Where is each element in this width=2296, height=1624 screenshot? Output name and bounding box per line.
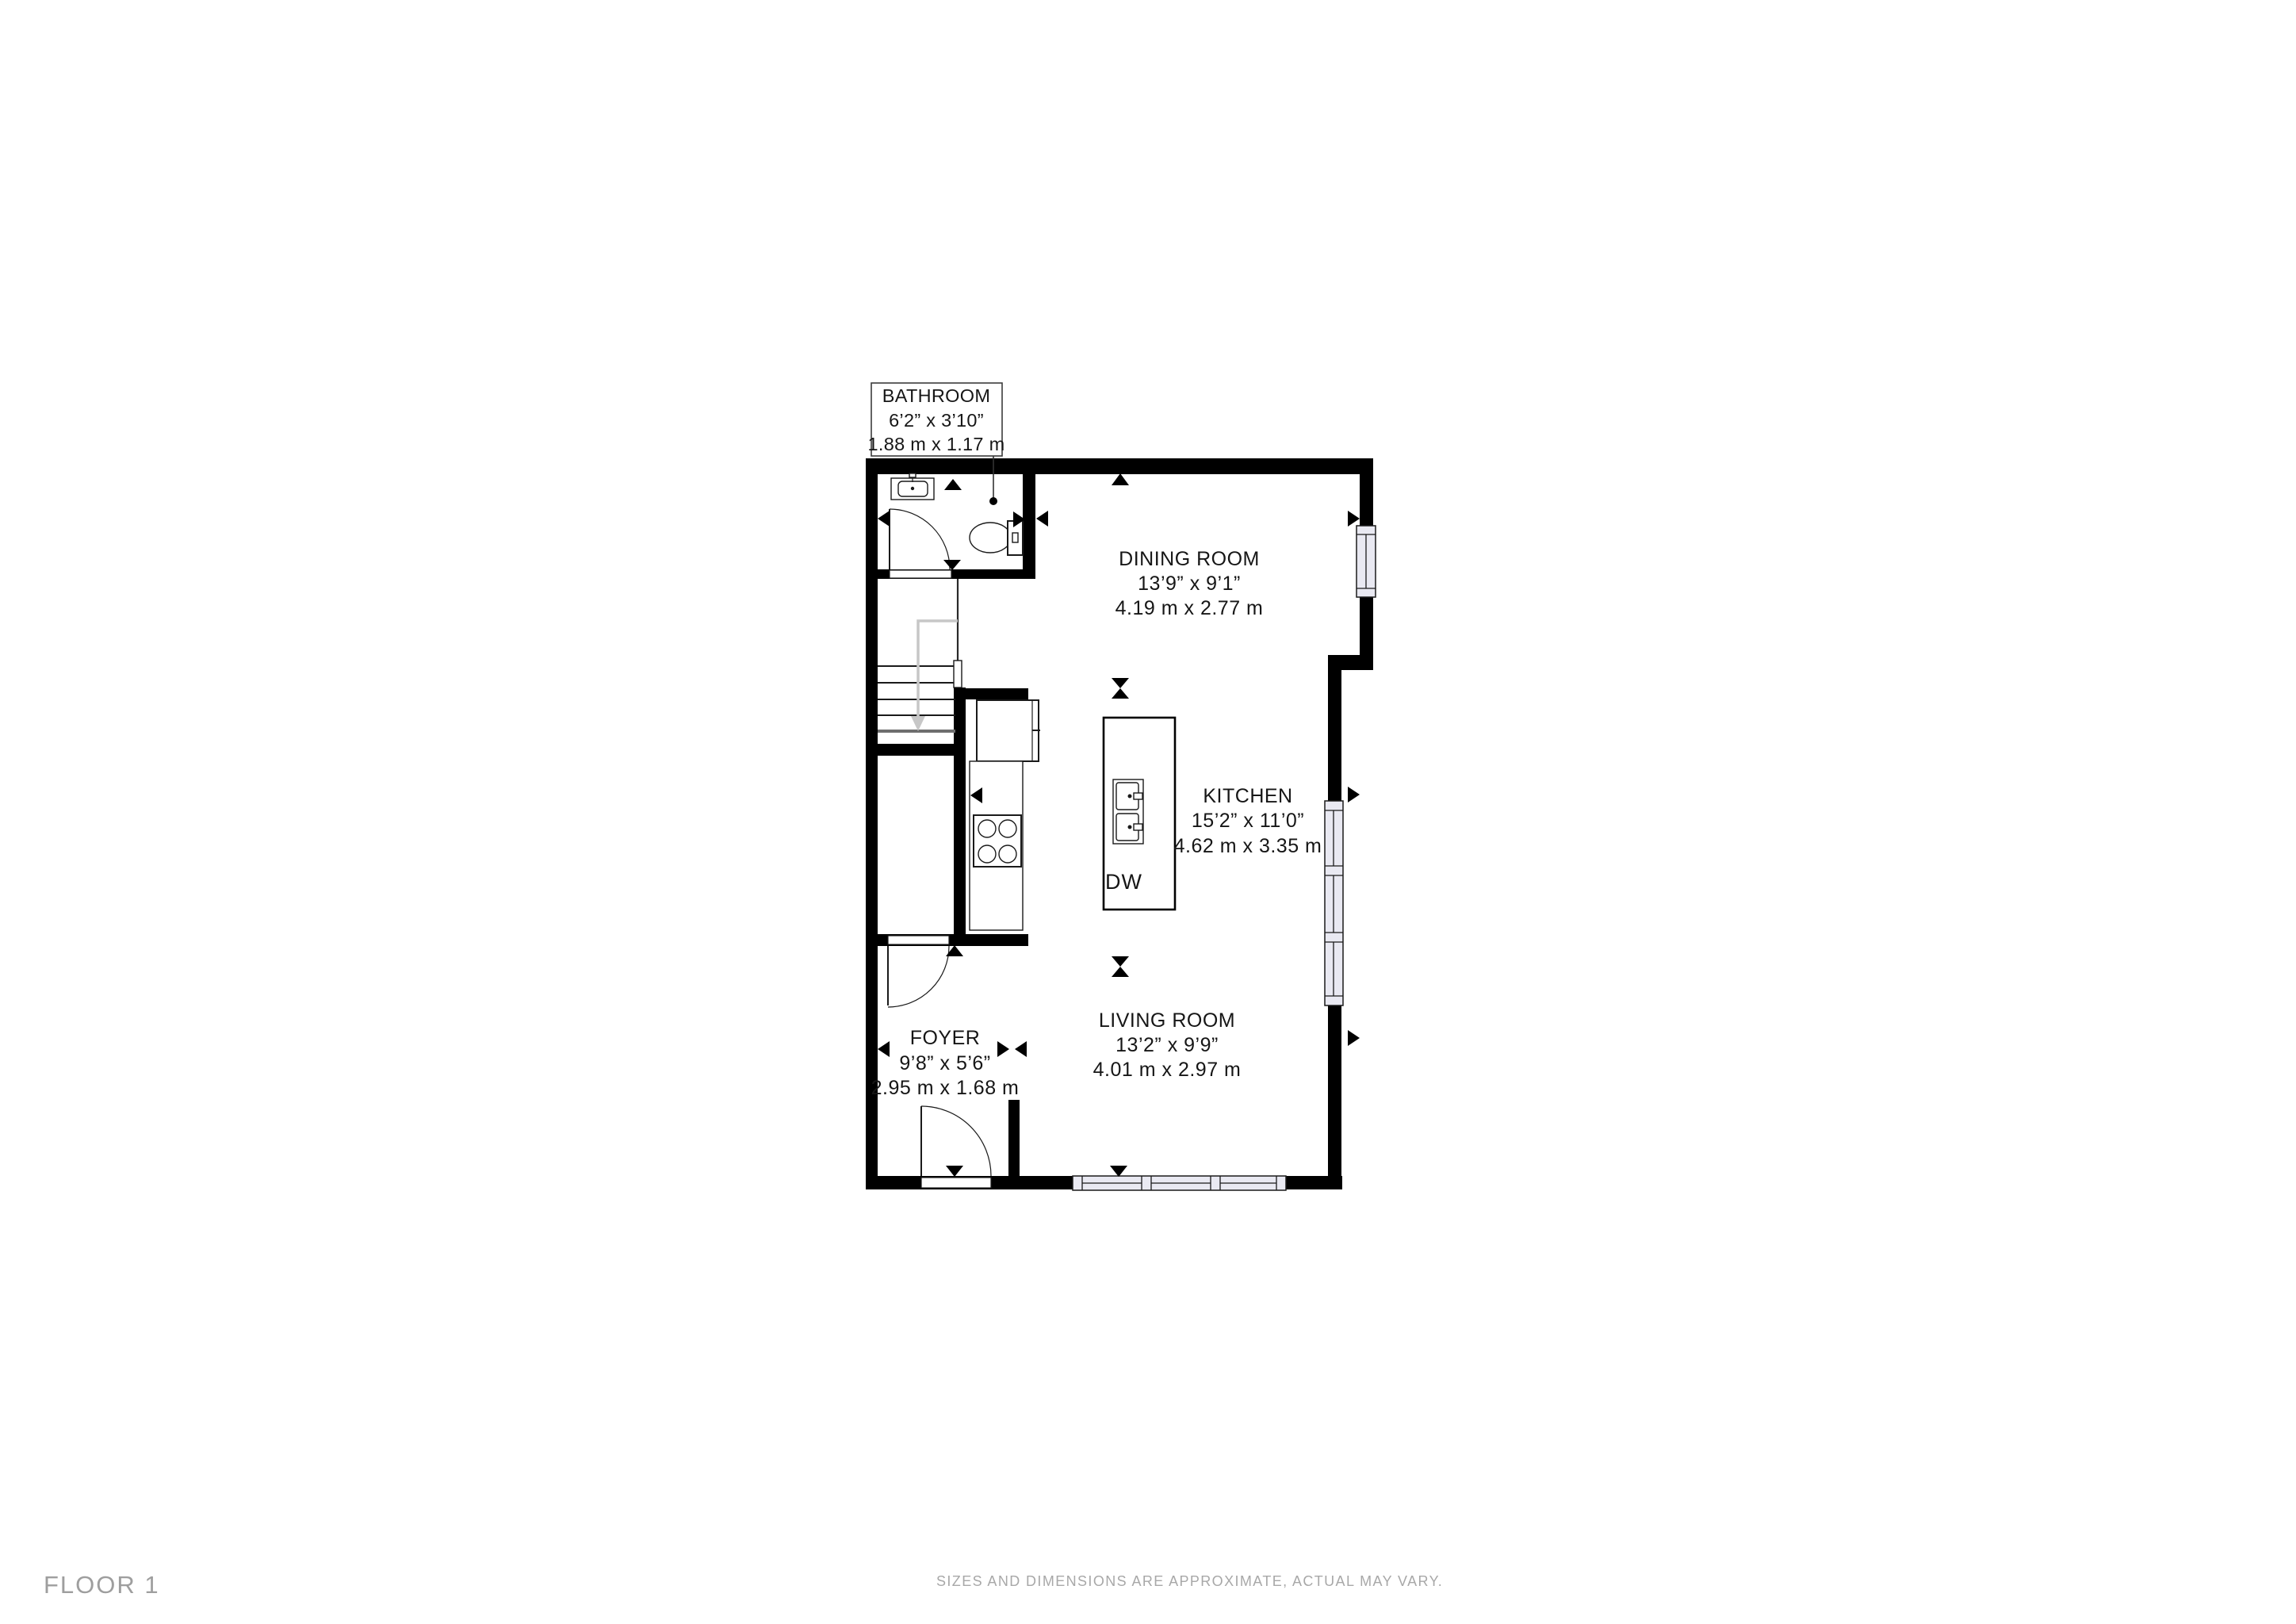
bathroom-door [890,509,951,578]
window-dining [1357,526,1376,597]
kitchen-dim-metric: 4.62 m x 3.35 m [1174,835,1322,857]
floor-plan-page: { "floor": { "label": "FLOOR 1" }, "disc… [0,0,2296,1624]
living-dim-imperial: 13’2” x 9’9” [1115,1034,1219,1056]
floor-plan-drawing: BATHROOM 6’2” x 3’10” 1.88 m x 1.17 m [0,0,2296,1624]
living-dim-metric: 4.01 m x 2.97 m [1093,1059,1242,1081]
dining-dim-metric: 4.19 m x 2.77 m [1115,597,1264,619]
dim-arrow-up-icon [1112,473,1129,485]
bathroom-label-box: BATHROOM 6’2” x 3’10” 1.88 m x 1.17 m [868,383,1005,456]
window-right-strip [1325,801,1343,1005]
dim-arrow-left-icon [878,1041,890,1057]
kitchen-island: DW [1104,718,1175,910]
wall-closet-right [954,688,966,946]
foyer-name: FOYER [910,1027,981,1049]
dining-dim-imperial: 13’9” x 9’1” [1138,573,1241,595]
foyer-label: FOYER 9’8” x 5’6” 2.95 m x 1.68 m [871,1027,1020,1099]
dim-arrow-right-icon [1348,511,1360,527]
stair-direction-arrow-icon [911,716,925,731]
dim-arrow-right-icon [1348,1030,1360,1046]
kitchen-label: KITCHEN 15’2” x 11’0” 4.62 m x 3.35 m [1174,785,1322,857]
window-bottom-strip [1073,1176,1286,1190]
dim-marker-hourglass-bottom [1112,956,1129,977]
kitchen-fridge [977,700,1040,761]
bathroom-sink [891,473,934,500]
dim-arrow-right-icon [1348,787,1360,802]
dim-arrow-down-icon [1110,1166,1127,1177]
dim-arrow-down-icon [943,560,961,570]
dim-arrow-left-icon [1015,1041,1027,1057]
dim-arrow-left-icon [878,511,890,527]
label-leader-dot [989,497,997,505]
bathroom-name: BATHROOM [882,385,990,406]
living-name: LIVING ROOM [1099,1009,1235,1032]
foyer-dim-imperial: 9’8” x 5’6” [899,1052,990,1074]
dishwasher-label: DW [1105,870,1142,894]
kitchen-fixtures: DW [970,678,1175,977]
dim-marker-hourglass-top [1112,678,1129,699]
bathroom-dim-metric: 1.88 m x 1.17 m [868,434,1005,454]
staircase [878,579,962,731]
disclaimer-text: SIZES AND DIMENSIONS ARE APPROXIMATE, AC… [936,1573,1443,1590]
wall-kitchen-top [957,688,1028,699]
wall-foyer-stub [1008,1100,1020,1177]
closet-door [888,936,963,1007]
dim-arrow-up-icon [944,479,962,490]
dining-name: DINING ROOM [1119,548,1260,570]
bathroom-dim-imperial: 6’2” x 3’10” [889,410,984,431]
kitchen-dim-imperial: 15’2” x 11’0” [1192,810,1304,832]
bathroom [878,456,1025,578]
dim-arrow-right-icon [997,1041,1009,1057]
foyer-dim-metric: 2.95 m x 1.68 m [871,1077,1020,1099]
kitchen-name: KITCHEN [1203,785,1292,807]
room-labels: DINING ROOM 13’9” x 9’1” 4.19 m x 2.77 m… [871,548,1322,1099]
stair-newel [954,661,962,688]
kitchen-stove [974,815,1021,867]
living-room-label: LIVING ROOM 13’2” x 9’9” 4.01 m x 2.97 m [1093,1009,1242,1081]
wall-below-stairs [866,744,966,756]
entry-door [921,1106,991,1188]
dim-arrow-left-icon [1036,511,1048,527]
floor-title: FLOOR 1 [44,1571,160,1599]
wall-bathroom-right [1023,458,1035,579]
wall-top [866,458,1373,474]
dining-room-label: DINING ROOM 13’9” x 9’1” 4.19 m x 2.77 m [1115,548,1264,619]
dim-arrow-down-icon [946,1166,963,1177]
stair-direction-line [918,621,958,716]
